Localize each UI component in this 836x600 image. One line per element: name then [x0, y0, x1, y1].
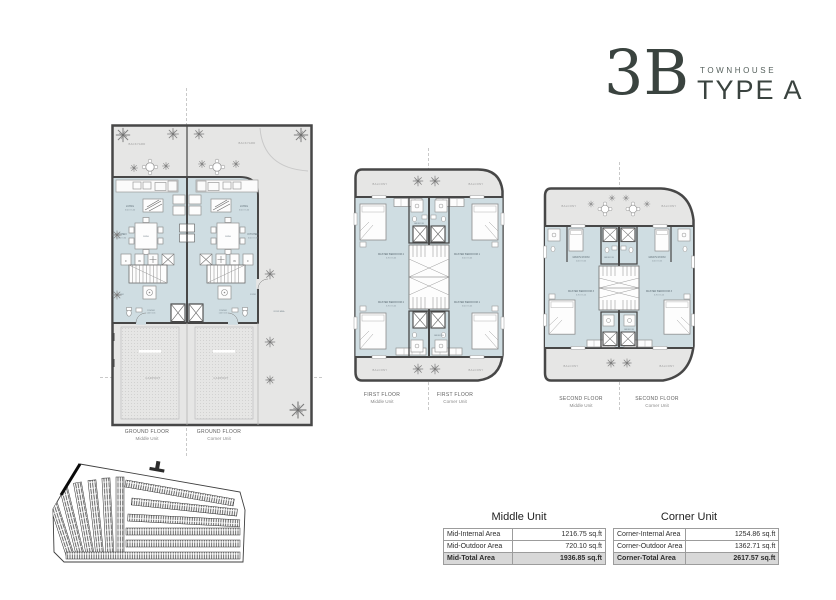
svg-text:MASTER BEDROOM 1: MASTER BEDROOM 1: [454, 301, 481, 304]
caption-first-corner: FIRST FLOOR Corner Unit: [419, 392, 491, 404]
table-row: Mid-Outdoor Area 720.10 sq.ft: [444, 541, 606, 553]
svg-text:2.00 X 3.25: 2.00 X 3.25: [576, 261, 587, 263]
svg-text:MASTER BEDROOM 3: MASTER BEDROOM 3: [568, 290, 595, 293]
masterplan-key-plan: [28, 452, 250, 590]
unit-category-label: TOWNHOUSE: [700, 66, 776, 75]
svg-text:CARPORT: CARPORT: [213, 376, 228, 380]
stairs: [409, 245, 449, 309]
svg-text:FRONT AREA: FRONT AREA: [274, 310, 286, 313]
svg-text:BALCONY: BALCONY: [469, 182, 484, 186]
svg-text:3.50 X 5.50: 3.50 X 5.50: [239, 210, 250, 212]
svg-text:3.50 X 3.30: 3.50 X 3.30: [248, 238, 259, 240]
svg-text:3.50 X 5.50: 3.50 X 5.50: [125, 210, 136, 212]
svg-text:LIVING: LIVING: [240, 205, 248, 208]
caption-first-middle: FIRST FLOOR Middle Unit: [346, 392, 418, 404]
table-row: Corner-Internal Area 1254.86 sq.ft: [614, 529, 779, 541]
svg-text:2.00 X 3.25: 2.00 X 3.25: [652, 261, 663, 263]
svg-text:MAID'S ROOM: MAID'S ROOM: [573, 256, 590, 259]
table-row-total: Mid-Total Area 1936.85 sq.ft: [444, 553, 606, 565]
svg-text:F: F: [125, 259, 127, 263]
door-opening: [136, 321, 146, 325]
svg-text:MASTER BEDROOM 2: MASTER BEDROOM 2: [378, 253, 405, 256]
ground-floor-plan: BACKYARD BACKYARD LIVING 3.50 X 5.50 L: [109, 123, 315, 429]
middle-unit-table-title: Middle Unit: [443, 511, 595, 523]
svg-text:BALCONY: BALCONY: [660, 364, 675, 368]
backyard-label: BACKYARD: [129, 142, 146, 146]
svg-text:3.50 X 5.05: 3.50 X 5.05: [462, 306, 473, 308]
site-entrance: [149, 460, 166, 473]
unit-type-label: TYPE A: [697, 75, 804, 106]
svg-text:3.50 X 5.05: 3.50 X 5.05: [462, 258, 473, 260]
svg-text:W: W: [138, 259, 141, 263]
svg-text:BALCONY: BALCONY: [373, 182, 388, 186]
stairs: [599, 266, 639, 310]
svg-text:BATHROOM: BATHROOM: [624, 328, 634, 331]
svg-text:CARPORT: CARPORT: [145, 376, 160, 380]
svg-text:MASTER BEDROOM 2: MASTER BEDROOM 2: [378, 301, 405, 304]
svg-text:MAID'S ROOM: MAID'S ROOM: [649, 256, 666, 259]
svg-text:3.50 X 3.30: 3.50 X 3.30: [116, 238, 127, 240]
svg-text:3.70 X 5.05: 3.70 X 5.05: [386, 306, 397, 308]
backyard-label: BACKYARD: [239, 141, 256, 145]
caption-ground-corner: GROUND FLOOR Corner Unit: [183, 429, 255, 441]
svg-text:BATHROOM: BATHROOM: [414, 222, 424, 225]
svg-text:3.70 X 5.15: 3.70 X 5.15: [576, 295, 587, 297]
door-opening: [228, 321, 238, 325]
svg-text:LIVING: LIVING: [126, 205, 134, 208]
svg-text:FOYER: FOYER: [250, 294, 257, 296]
caption-ground-middle: GROUND FLOOR Middle Unit: [111, 429, 183, 441]
unit-type-number: 3B: [604, 42, 689, 104]
svg-text:3.70 X 5.15: 3.70 X 5.15: [654, 295, 665, 297]
second-floor-plan: BALCONY BALCONY BALCONY BALCONY MAID'S R…: [541, 186, 698, 384]
table-row-total: Corner-Total Area 2617.57 sq.ft: [614, 553, 779, 565]
svg-text:BALCONY: BALCONY: [562, 204, 577, 208]
svg-text:BATHROOM: BATHROOM: [434, 334, 444, 337]
caption-second-corner: SECOND FLOOR Corner Unit: [621, 396, 693, 408]
svg-text:W: W: [233, 259, 236, 263]
svg-text:MASTER BEDROOM 1: MASTER BEDROOM 1: [454, 253, 481, 256]
svg-text:MASTER BEDROOM 3: MASTER BEDROOM 3: [646, 290, 673, 293]
table-row: Mid-Internal Area 1216.75 sq.ft: [444, 529, 606, 541]
svg-text:F: F: [247, 259, 249, 263]
caption-second-middle: SECOND FLOOR Middle Unit: [545, 396, 617, 408]
corner-unit-area-table: Corner-Internal Area 1254.86 sq.ft Corne…: [613, 528, 779, 565]
svg-text:3.70 X 5.05: 3.70 X 5.05: [386, 258, 397, 260]
svg-text:BALCONY: BALCONY: [564, 364, 579, 368]
svg-text:BALCONY: BALCONY: [469, 368, 484, 372]
svg-text:DINING: DINING: [143, 236, 150, 238]
svg-text:BATHROOM: BATHROOM: [604, 256, 614, 259]
svg-text:DINING: DINING: [225, 236, 232, 238]
svg-text:1.40 X 1.55: 1.40 X 1.55: [147, 313, 156, 315]
svg-text:KITCHEN: KITCHEN: [248, 233, 259, 236]
first-floor-plan: BALCONY BALCONY BALCONY BALCONY MASTER B…: [352, 167, 506, 383]
corner-unit-table-title: Corner Unit: [613, 511, 765, 523]
table-row: Corner-Outdoor Area 1362.71 sq.ft: [614, 541, 779, 553]
svg-text:BALCONY: BALCONY: [662, 204, 677, 208]
svg-text:BALCONY: BALCONY: [373, 368, 388, 372]
floorplan-sheet: 3B TOWNHOUSE TYPE A: [0, 0, 836, 600]
middle-unit-area-table: Mid-Internal Area 1216.75 sq.ft Mid-Outd…: [443, 528, 606, 565]
svg-text:1.40 X 1.55: 1.40 X 1.55: [219, 313, 228, 315]
